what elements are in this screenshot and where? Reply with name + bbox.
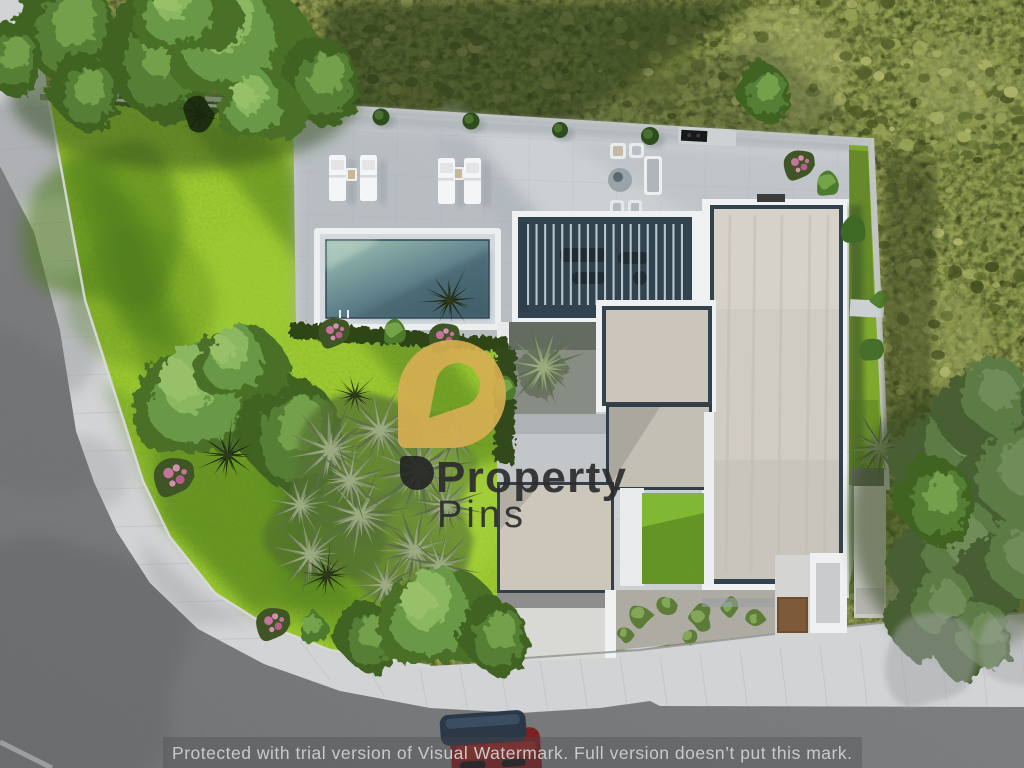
svg-text:Protected with trial version o: Protected with trial version of Visual W…: [172, 743, 852, 763]
svg-text:Pins: Pins: [437, 494, 523, 536]
svg-text:Property: Property: [436, 453, 627, 502]
